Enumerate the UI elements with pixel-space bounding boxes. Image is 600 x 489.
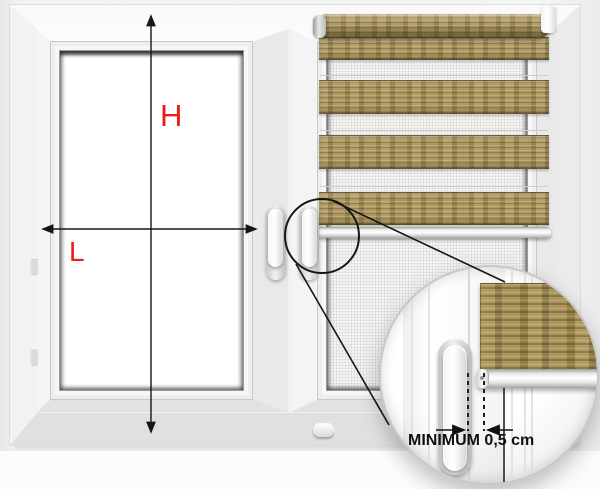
- left-casement-sash: [37, 29, 288, 412]
- blind-opaque-stripe-1: [319, 37, 549, 60]
- blind-opaque-stripe-4: [319, 192, 549, 225]
- width-label: L: [69, 238, 85, 266]
- blind-bottom-bar: [316, 227, 551, 238]
- clearance-arrows: [381, 267, 599, 485]
- blind-sheer-seam: [320, 186, 548, 187]
- blind-sheer-seam: [320, 130, 548, 131]
- detail-inset-magnifier: MINIMUM 0,5 cm: [379, 265, 599, 485]
- hinge-lower: [31, 348, 38, 365]
- left-glazing-bead: [51, 42, 252, 399]
- blind-opaque-stripe-2: [319, 80, 549, 114]
- blind-roller-tube: [315, 14, 551, 38]
- sash-stopper-stub: [334, 426, 340, 435]
- right-window-handle: [302, 209, 317, 267]
- hinge-upper: [31, 257, 38, 274]
- blind-left-end-cap: [313, 15, 326, 38]
- left-glass-pane: [59, 50, 244, 391]
- blind-opaque-stripe-3: [319, 135, 549, 169]
- blind-right-bracket: [541, 6, 556, 33]
- clearance-caption: MINIMUM 0,5 cm: [408, 432, 534, 450]
- window-blind-measurement-diagram: H L MINIMUM 0,5 cm: [0, 0, 600, 489]
- left-window-handle: [268, 209, 283, 267]
- sash-stopper-knob: [313, 423, 334, 437]
- height-label: H: [160, 100, 182, 131]
- blind-roller-shine: [315, 14, 551, 38]
- blind-sheer-seam: [320, 75, 548, 76]
